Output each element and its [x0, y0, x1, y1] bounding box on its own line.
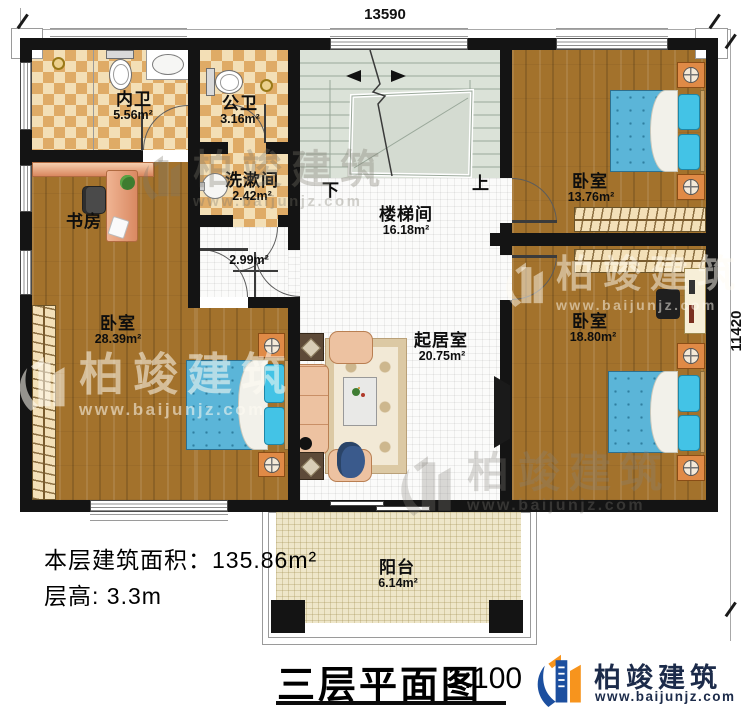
- nightstand: [677, 62, 705, 88]
- dimension-tick: [709, 14, 721, 29]
- wall-interior: [288, 38, 300, 250]
- tv: [494, 376, 510, 448]
- dresser: [684, 268, 706, 334]
- floor-area-info: 本层建筑面积：135.86m²: [44, 541, 317, 575]
- coffee-table: [343, 377, 377, 426]
- drawing-scale: 1:100: [447, 662, 522, 696]
- dresser-item: [689, 280, 695, 294]
- lamp-table: [296, 333, 324, 361]
- door-leaf: [200, 248, 248, 251]
- wall-interior: [200, 142, 228, 154]
- room-area: 6.14m²: [370, 577, 426, 590]
- wardrobe: [574, 207, 706, 232]
- nightstand: [677, 455, 705, 481]
- room-label: 内卫: [106, 91, 162, 109]
- decor-item: [299, 437, 312, 450]
- bed-pillow: [678, 415, 700, 451]
- room-label: 洗漱间: [212, 172, 292, 190]
- nightstand: [677, 343, 705, 369]
- dimension-height: 11420: [728, 301, 746, 361]
- room-label: 楼梯间: [371, 206, 441, 224]
- room-area: 20.75m²: [408, 350, 476, 363]
- window: [556, 38, 668, 50]
- toilet-tank: [106, 50, 134, 59]
- lamp-table: [296, 452, 324, 480]
- brand-logo-icon: [534, 650, 588, 710]
- floor-door-gap-1: [500, 178, 512, 223]
- title-underline: [276, 701, 506, 705]
- bed-pillow: [264, 364, 285, 403]
- room-label: 卧室: [556, 173, 624, 191]
- nightstand: [677, 174, 705, 200]
- balcony-pillar: [271, 600, 305, 633]
- room-label: 卧室: [556, 313, 624, 331]
- room-area: 2.42m²: [218, 190, 286, 203]
- floor-drain-icon-2: [260, 79, 273, 92]
- window: [20, 165, 32, 212]
- room-area: 13.76m²: [558, 191, 624, 204]
- balcony-pillar: [489, 600, 523, 633]
- desk-chair: [82, 186, 106, 214]
- bed-blanket: [650, 90, 678, 172]
- wall-interior: [288, 297, 300, 512]
- window: [330, 38, 468, 50]
- window: [20, 62, 32, 130]
- stool: [656, 289, 680, 319]
- wall-interior: [32, 150, 143, 162]
- armchair: [329, 331, 373, 364]
- stair-down-label: 下: [316, 182, 346, 200]
- floor-height-info: 层高: 3.3m: [44, 577, 162, 611]
- room-area: 28.39m²: [83, 333, 153, 346]
- wall-interior: [200, 215, 233, 227]
- toilet-icon-2: [215, 70, 243, 94]
- wall-interior: [188, 297, 200, 308]
- nightstand: [258, 452, 285, 477]
- wall-interior: [266, 142, 288, 154]
- door-leaf: [512, 220, 557, 223]
- bed-blanket: [650, 371, 678, 453]
- toilet-tank-2: [206, 68, 215, 96]
- shower-partition-line: [93, 50, 94, 150]
- wardrobe: [32, 305, 56, 500]
- wall-interior: [500, 38, 512, 178]
- bed-pillow: [678, 375, 700, 412]
- room-area: 18.80m²: [560, 331, 626, 344]
- room-label: 卧室: [87, 315, 149, 333]
- bed-pillow: [264, 407, 285, 445]
- stair-up-label: 上: [466, 175, 496, 193]
- dimension-width: 13590: [330, 6, 440, 23]
- sink-icon: [152, 54, 184, 75]
- window-sill: [90, 514, 228, 521]
- staircase: [300, 50, 500, 178]
- wall-outer-right: [706, 38, 718, 512]
- floor-drain-icon: [52, 57, 65, 70]
- dresser-item: [689, 305, 694, 323]
- toilet-icon: [109, 59, 132, 90]
- bed-pillow: [678, 94, 700, 130]
- room-label: 阳台: [368, 559, 426, 577]
- dimension-line-top: [20, 29, 730, 30]
- room-label: 起居室: [404, 332, 478, 350]
- window: [20, 250, 32, 295]
- sliding-door: [376, 506, 430, 511]
- table-flowers: [352, 388, 360, 396]
- wall-interior: [278, 215, 288, 227]
- floor-plan-page: { "dimensions": { "top": "13590", "right…: [0, 0, 750, 724]
- room-area: 5.56m²: [100, 109, 166, 122]
- bed-headboard: [700, 90, 705, 172]
- floor-door-gap-2: [500, 255, 512, 300]
- window: [90, 500, 228, 512]
- bed-pillow: [678, 134, 700, 170]
- plant-icon: [120, 175, 135, 190]
- room-label: 书房: [61, 213, 107, 231]
- dimension-tick: [17, 14, 29, 29]
- room-label: 公卫: [212, 95, 268, 113]
- room-area: 16.18m²: [373, 224, 439, 237]
- decor-clothing: [337, 442, 365, 478]
- wall-interior: [188, 50, 200, 308]
- room-area: 3.16m²: [208, 113, 272, 126]
- brand-url: www.baijunjz.com: [595, 689, 736, 704]
- door-leaf: [512, 255, 557, 258]
- bed-headboard: [700, 371, 705, 453]
- nightstand: [258, 333, 285, 358]
- room-area: 2.99m²: [224, 254, 274, 267]
- wall-interior: [490, 233, 706, 246]
